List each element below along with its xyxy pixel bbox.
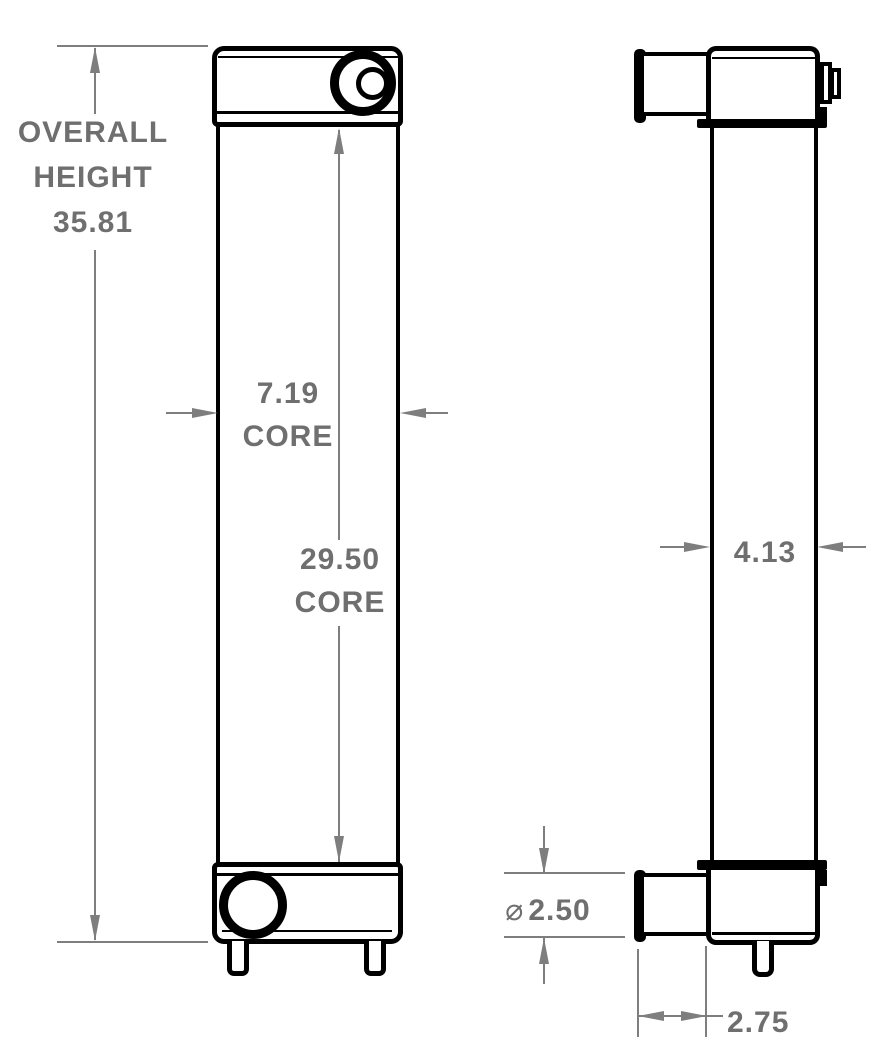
side-cap-fitting-inner	[830, 68, 841, 99]
side-bottom-tank-inner-line	[712, 932, 815, 935]
outlet-dia-value: 2.50	[528, 894, 590, 927]
overall-height-label-line1: OVERALL	[7, 110, 179, 155]
side-core	[710, 124, 818, 865]
overall-height-arrow-up	[90, 47, 100, 73]
outlet-dia-arrow-bottom-shaft	[543, 938, 545, 984]
outlet-dia-arrow-top-head	[539, 848, 549, 874]
overall-height-dim-line-lower	[94, 250, 96, 940]
pipe-length-arrow-left-head	[638, 1011, 664, 1021]
core-width-arrow-right-shaft	[424, 412, 448, 414]
side-top-tank-inner-line	[712, 57, 815, 59]
core-depth-arrow-left-head	[684, 542, 710, 552]
outlet-dia-ext-line-bottom	[504, 936, 625, 938]
core-height-arrow-down	[334, 836, 344, 862]
pipe-length-ext-line-right	[705, 946, 707, 1037]
overall-height-ext-line-top	[57, 45, 208, 47]
outlet-dia-label: ⌀2.50	[486, 889, 610, 932]
core-height-core-label: CORE	[262, 581, 418, 624]
core-depth-value: 4.13	[712, 531, 818, 574]
overall-height-label-line2: HEIGHT	[7, 155, 179, 200]
side-outlet-pipe	[644, 873, 706, 936]
side-bottom-tank-top-bar	[697, 860, 827, 870]
core-height-label: 29.50 CORE	[262, 538, 418, 624]
front-foot-left	[227, 941, 249, 976]
core-height-dim-line-lower	[338, 626, 340, 862]
radiator-technical-drawing: OVERALL HEIGHT 35.81 7.19 CORE 29.50 COR…	[0, 0, 888, 1057]
pipe-length-arrow-right-head	[681, 1011, 707, 1021]
side-inlet-pipe	[644, 52, 708, 116]
core-height-dim-line-upper	[338, 130, 340, 540]
front-core	[216, 124, 400, 865]
side-drain-pin	[752, 941, 774, 977]
outlet-dia-ext-line-top	[504, 872, 625, 874]
pipe-length-ext-line-left	[637, 949, 639, 1037]
overall-height-arrow-down	[90, 915, 100, 941]
filler-neck-inner-ring	[356, 67, 389, 100]
core-depth-arrow-right-head	[817, 542, 843, 552]
overall-height-label: OVERALL HEIGHT 35.81	[7, 110, 179, 245]
core-width-arrow-left-head	[192, 408, 218, 418]
pipe-length-value: 2.75	[727, 1001, 827, 1044]
overall-height-ext-line-bottom	[57, 941, 208, 943]
core-depth-arrow-right-shaft	[841, 546, 866, 548]
core-height-value: 29.50	[262, 538, 418, 581]
outlet-port-ring	[219, 871, 287, 939]
overall-height-value: 35.81	[7, 200, 179, 245]
front-foot-right	[364, 941, 386, 976]
core-width-arrow-right-head	[400, 408, 426, 418]
diameter-symbol-icon: ⌀	[505, 893, 524, 928]
side-bottom-tank-right-tab	[818, 870, 827, 886]
